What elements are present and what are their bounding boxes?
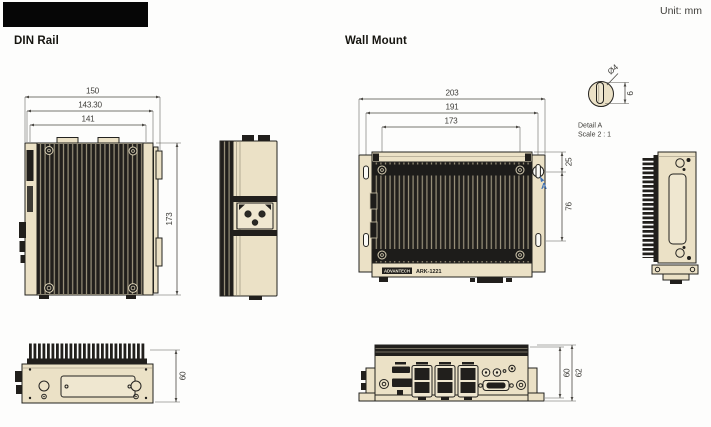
- db9-serial-port: [479, 381, 514, 391]
- side-connector: [19, 222, 26, 238]
- wall-mount-front-view: 203 191 173 25 76: [359, 89, 574, 284]
- dim-width-overall: 203: [446, 89, 460, 98]
- expansion-plate: [669, 174, 686, 244]
- lan-usb-stack: [458, 362, 478, 400]
- side-connector: [21, 255, 26, 263]
- model-text: ARK-1221: [416, 269, 441, 275]
- lan-usb-stack: [412, 362, 432, 400]
- hdmi-port: [392, 367, 410, 374]
- dim-height-body: 60: [563, 368, 572, 377]
- side-port: [370, 193, 377, 209]
- side-connector: [16, 385, 22, 394]
- vertical-logo-blob: [27, 150, 34, 181]
- dim-height-overall: 62: [575, 368, 584, 377]
- din-rail-front-view: 150 143.30 141 173: [19, 87, 181, 300]
- heatsink-fins: [37, 144, 143, 294]
- top-connector: [258, 135, 270, 141]
- dim-height: 173: [165, 212, 174, 226]
- dim-hole-diameter: Ø4: [606, 62, 620, 76]
- dim-width-slots: 191: [446, 103, 460, 112]
- technical-drawing: 150 143.30 141 173: [0, 0, 711, 427]
- mount-bracket-left: [366, 368, 375, 395]
- top-connector: [242, 135, 254, 141]
- heatsink-fins: [220, 141, 233, 296]
- dim-height: 60: [179, 371, 188, 380]
- lan-usb-stack: [435, 362, 455, 400]
- dimension-drawing-page: Unit: mm DIN Rail Wall Mount 15: [0, 0, 711, 427]
- detail-ref-label: A: [541, 182, 547, 191]
- mount-bracket-right: [528, 368, 537, 395]
- vertical-label-blob: [27, 186, 33, 212]
- chassis-top-strip: [372, 152, 532, 162]
- din-clip: [233, 196, 277, 236]
- dim-slot-spacing: 76: [565, 202, 574, 211]
- bottom-foot: [249, 296, 262, 300]
- dim-width-inner: 141: [82, 115, 96, 124]
- reset-hole: [397, 390, 403, 395]
- expansion-plate: [61, 376, 135, 397]
- mount-base: [652, 265, 698, 274]
- dim-slot-length: 6: [626, 91, 635, 96]
- heatsink-fins: [372, 162, 532, 263]
- dim-width-overall: 150: [86, 87, 100, 96]
- side-connector: [15, 371, 22, 382]
- dim-width-mid: 143.30: [78, 101, 102, 110]
- wall-mount-bottom-view: 60 62: [359, 345, 584, 401]
- detail-scale: Scale 2 : 1: [578, 132, 611, 139]
- brand-text: ADVANTECH: [384, 269, 410, 274]
- din-rail-side-view: [220, 135, 277, 300]
- side-port: [370, 222, 377, 238]
- dim-width-screws: 173: [445, 117, 459, 126]
- side-connector: [20, 241, 26, 252]
- displayport-port: [392, 379, 412, 388]
- detail-a-view: Ø4 6 Detail A Scale 2 : 1: [578, 62, 635, 138]
- dim-slot-offset: 25: [565, 157, 574, 166]
- bottom-connector: [477, 277, 503, 283]
- wall-mount-side-view: [649, 152, 698, 284]
- din-rail-bottom-view: 60: [15, 350, 188, 403]
- detail-title: Detail A: [578, 123, 602, 130]
